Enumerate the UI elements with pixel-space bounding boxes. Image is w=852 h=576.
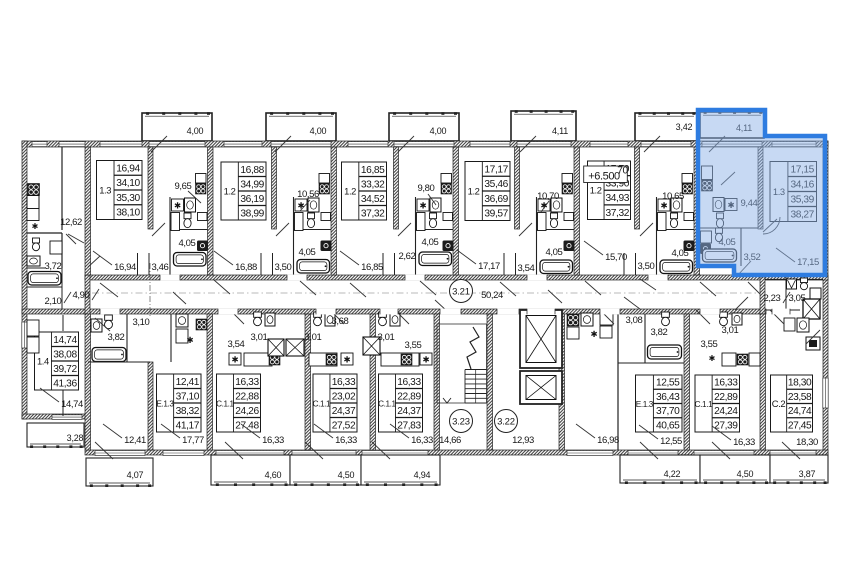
svg-text:14,74: 14,74 [61, 399, 83, 410]
svg-text:4,00: 4,00 [187, 126, 204, 136]
svg-text:4,05: 4,05 [422, 237, 439, 248]
svg-text:C.1.1: C.1.1 [216, 399, 234, 408]
svg-text:40,65: 40,65 [656, 420, 680, 431]
svg-text:C.1.1: C.1.1 [695, 400, 713, 409]
svg-text:✱: ✱ [422, 355, 429, 365]
svg-text:16,85: 16,85 [361, 165, 385, 176]
svg-text:36,19: 36,19 [240, 194, 264, 205]
svg-text:3,01: 3,01 [722, 325, 739, 336]
svg-text:24,26: 24,26 [235, 406, 259, 417]
svg-text:2,23: 2,23 [764, 293, 781, 304]
svg-text:16,94: 16,94 [116, 163, 140, 174]
svg-text:4,07: 4,07 [127, 470, 144, 480]
svg-text:✱: ✱ [660, 201, 667, 211]
svg-text:10,70: 10,70 [537, 191, 559, 202]
svg-text:16,33: 16,33 [235, 377, 259, 388]
svg-text:27,45: 27,45 [788, 420, 812, 431]
svg-text:3,28: 3,28 [67, 433, 84, 443]
svg-text:3.22: 3.22 [497, 416, 515, 427]
svg-text:14,74: 14,74 [53, 335, 77, 346]
svg-text:✱: ✱ [32, 222, 39, 231]
svg-text:4,05: 4,05 [299, 247, 316, 258]
svg-text:34,10: 34,10 [116, 178, 140, 189]
svg-text:12,55: 12,55 [660, 436, 682, 447]
svg-text:✱: ✱ [709, 354, 716, 363]
svg-text:4,00: 4,00 [310, 126, 327, 136]
svg-text:3,05: 3,05 [789, 293, 806, 304]
svg-text:3.21: 3.21 [452, 286, 470, 297]
svg-text:3,55: 3,55 [701, 339, 718, 350]
svg-text:3,68: 3,68 [332, 316, 349, 327]
svg-text:✱: ✱ [231, 355, 238, 365]
svg-text:16,33: 16,33 [262, 435, 284, 446]
svg-text:✱: ✱ [186, 335, 193, 345]
svg-text:3,01: 3,01 [305, 332, 322, 343]
svg-text:24,37: 24,37 [332, 406, 356, 417]
svg-text:✱: ✱ [174, 201, 181, 211]
svg-text:4,94: 4,94 [414, 470, 431, 480]
svg-text:38,08: 38,08 [53, 349, 77, 360]
svg-text:17,17: 17,17 [484, 164, 508, 175]
svg-text:24,24: 24,24 [714, 406, 738, 417]
svg-text:9,65: 9,65 [175, 181, 192, 192]
svg-text:16,33: 16,33 [397, 377, 421, 388]
svg-text:70: 70 [617, 166, 628, 177]
svg-text:12,55: 12,55 [656, 378, 680, 389]
svg-text:39,57: 39,57 [484, 209, 508, 220]
svg-text:33,32: 33,32 [361, 179, 385, 190]
svg-text:3,50: 3,50 [638, 261, 655, 272]
svg-text:34,99: 34,99 [240, 179, 264, 190]
svg-text:4,60: 4,60 [265, 470, 282, 480]
svg-text:4,11: 4,11 [552, 126, 568, 136]
svg-text:27,83: 27,83 [397, 420, 421, 431]
svg-text:50,24: 50,24 [481, 290, 503, 301]
svg-text:1.2: 1.2 [344, 185, 356, 196]
svg-text:16,88: 16,88 [235, 262, 257, 273]
svg-text:38,32: 38,32 [176, 406, 200, 417]
svg-text:2,10: 2,10 [45, 296, 62, 307]
svg-text:39,72: 39,72 [53, 364, 77, 375]
svg-text:16,33: 16,33 [733, 437, 755, 448]
svg-text:C.1.1: C.1.1 [313, 399, 331, 408]
svg-text:3,01: 3,01 [251, 332, 268, 343]
svg-text:✱: ✱ [297, 201, 304, 211]
svg-text:3,82: 3,82 [651, 327, 668, 338]
svg-text:3,50: 3,50 [275, 262, 292, 273]
svg-text:4,05: 4,05 [672, 248, 689, 259]
svg-text:22,89: 22,89 [714, 392, 738, 403]
svg-text:3,42: 3,42 [676, 122, 693, 132]
svg-text:3,08: 3,08 [626, 315, 643, 326]
svg-text:3,54: 3,54 [518, 263, 535, 274]
svg-text:9,80: 9,80 [418, 183, 435, 194]
svg-text:35,30: 35,30 [116, 193, 140, 204]
svg-text:C.1.1: C.1.1 [378, 399, 396, 408]
svg-text:3,55: 3,55 [405, 340, 422, 351]
svg-text:12,93: 12,93 [512, 435, 534, 446]
svg-text:14,66: 14,66 [439, 435, 461, 446]
svg-text:12,41: 12,41 [124, 435, 146, 446]
svg-text:37,32: 37,32 [606, 208, 630, 219]
svg-text:4,05: 4,05 [546, 247, 563, 258]
svg-text:3,54: 3,54 [228, 339, 245, 350]
svg-text:23,58: 23,58 [788, 392, 812, 403]
svg-text:24,74: 24,74 [788, 406, 812, 417]
svg-text:16,33: 16,33 [332, 377, 356, 388]
svg-text:36,69: 36,69 [484, 194, 508, 205]
svg-text:36,43: 36,43 [656, 392, 680, 403]
svg-text:3,87: 3,87 [799, 469, 816, 479]
svg-text:34,52: 34,52 [361, 194, 385, 205]
svg-text:12,62: 12,62 [60, 217, 82, 228]
svg-text:+6.500: +6.500 [588, 171, 620, 183]
svg-text:3,10: 3,10 [133, 317, 150, 328]
svg-text:1.3: 1.3 [99, 184, 111, 195]
svg-text:4,50: 4,50 [338, 470, 355, 480]
svg-text:41,17: 41,17 [176, 420, 200, 431]
svg-text:37,32: 37,32 [361, 208, 385, 219]
svg-text:24,37: 24,37 [397, 406, 421, 417]
svg-text:E.1.3: E.1.3 [636, 400, 654, 409]
svg-text:22,89: 22,89 [397, 391, 421, 402]
svg-text:16,33: 16,33 [714, 378, 738, 389]
svg-text:10,56: 10,56 [297, 189, 319, 200]
svg-text:✱: ✱ [343, 355, 350, 365]
svg-text:16,85: 16,85 [361, 262, 383, 273]
svg-text:3,82: 3,82 [108, 332, 125, 343]
svg-text:22,88: 22,88 [235, 391, 259, 402]
svg-text:✱: ✱ [590, 329, 597, 339]
svg-text:38,99: 38,99 [240, 208, 264, 219]
svg-text:16,98: 16,98 [597, 435, 619, 446]
svg-text:4,90: 4,90 [73, 290, 90, 301]
svg-text:3,01: 3,01 [378, 332, 395, 343]
svg-text:34,93: 34,93 [606, 193, 630, 204]
svg-text:38,10: 38,10 [116, 208, 140, 219]
svg-text:3.23: 3.23 [452, 416, 470, 427]
svg-text:E.1.3: E.1.3 [156, 399, 174, 408]
svg-text:✱: ✱ [419, 201, 426, 211]
svg-text:37,70: 37,70 [656, 406, 680, 417]
svg-text:4,05: 4,05 [179, 238, 196, 249]
svg-text:1.2: 1.2 [590, 185, 602, 196]
svg-text:1.2: 1.2 [224, 185, 236, 196]
svg-text:3,46: 3,46 [152, 262, 169, 273]
svg-text:4,50: 4,50 [737, 469, 754, 479]
svg-text:16,94: 16,94 [114, 262, 136, 273]
svg-text:16,88: 16,88 [240, 165, 264, 176]
svg-text:16,33: 16,33 [335, 435, 357, 446]
svg-text:10,65: 10,65 [662, 191, 684, 202]
svg-text:35,46: 35,46 [484, 179, 508, 190]
svg-text:2,62: 2,62 [399, 251, 416, 262]
svg-text:1.4: 1.4 [37, 355, 49, 366]
svg-text:1.2: 1.2 [468, 185, 480, 196]
svg-text:12,41: 12,41 [176, 377, 200, 388]
svg-text:27,52: 27,52 [332, 420, 356, 431]
svg-text:23,02: 23,02 [332, 391, 356, 402]
svg-text:18,30: 18,30 [788, 378, 812, 389]
svg-text:27,48: 27,48 [235, 420, 259, 431]
svg-text:C.2: C.2 [772, 398, 786, 409]
svg-text:17,17: 17,17 [478, 261, 500, 272]
svg-text:3,72: 3,72 [45, 261, 62, 272]
svg-text:16,33: 16,33 [411, 435, 433, 446]
svg-text:15,70: 15,70 [605, 252, 627, 263]
svg-text:37,10: 37,10 [176, 391, 200, 402]
svg-text:17,77: 17,77 [182, 435, 204, 446]
svg-text:41,36: 41,36 [53, 378, 77, 389]
svg-text:✱: ✱ [540, 201, 547, 211]
svg-text:18,30: 18,30 [796, 437, 818, 448]
svg-text:4,00: 4,00 [430, 126, 447, 136]
svg-text:4,22: 4,22 [664, 469, 681, 479]
